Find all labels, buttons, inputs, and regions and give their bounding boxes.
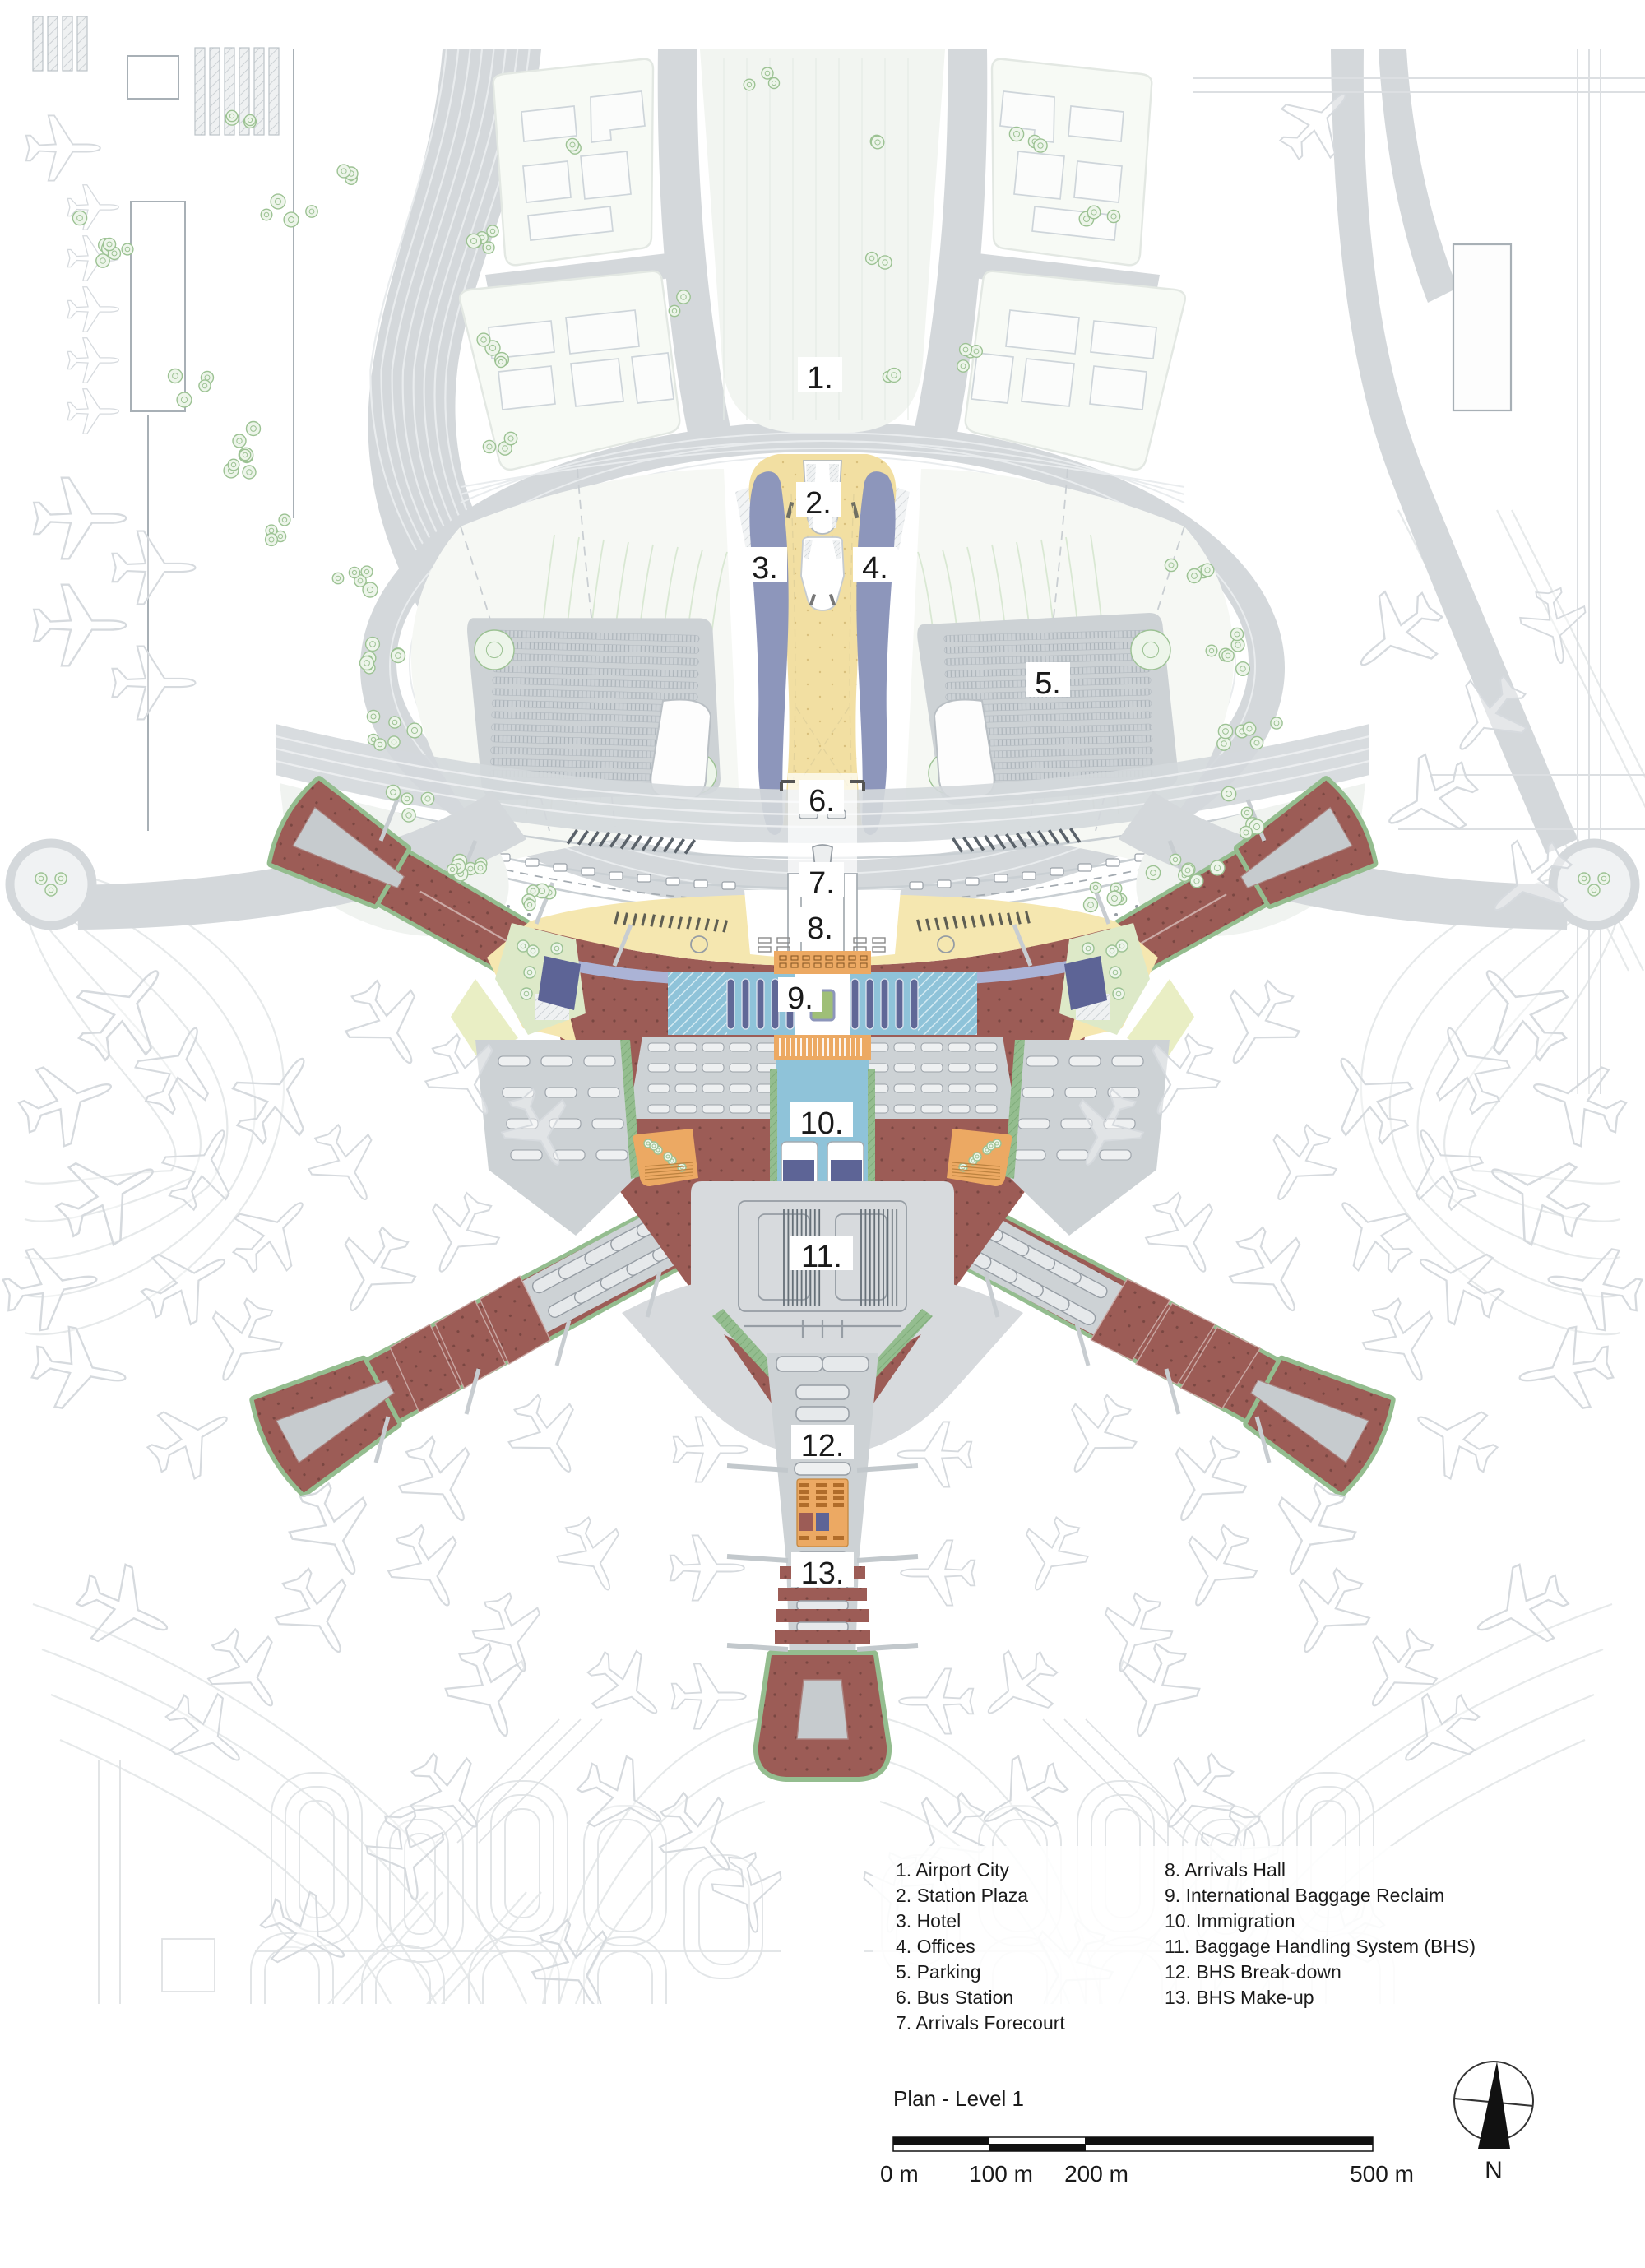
svg-text:6. Bus Station: 6. Bus Station	[896, 1987, 1013, 2008]
svg-text:10. Immigration: 10. Immigration	[1165, 1910, 1295, 1932]
svg-text:500 m: 500 m	[1350, 2161, 1414, 2187]
svg-text:7.: 7.	[809, 866, 835, 901]
svg-text:4. Offices: 4. Offices	[896, 1936, 975, 1957]
svg-text:13. BHS Make-up: 13. BHS Make-up	[1165, 1987, 1314, 2008]
svg-text:100 m: 100 m	[969, 2161, 1033, 2187]
svg-text:2.: 2.	[805, 486, 832, 521]
svg-text:1.: 1.	[807, 361, 833, 396]
svg-text:200 m: 200 m	[1064, 2161, 1128, 2187]
svg-text:9. International Baggage Recla: 9. International Baggage Reclaim	[1165, 1885, 1444, 1906]
svg-text:7. Arrivals Forecourt: 7. Arrivals Forecourt	[896, 2012, 1065, 2034]
svg-text:N: N	[1485, 2157, 1503, 2184]
svg-text:Plan - Level 1: Plan - Level 1	[893, 2086, 1024, 2111]
svg-text:12. BHS Break-down: 12. BHS Break-down	[1165, 1961, 1341, 1983]
svg-text:11.: 11.	[801, 1240, 842, 1274]
svg-text:5.: 5.	[1035, 666, 1061, 701]
svg-text:3. Hotel: 3. Hotel	[896, 1910, 961, 1932]
svg-text:1. Airport City: 1. Airport City	[896, 1859, 1010, 1881]
svg-text:6.: 6.	[809, 784, 835, 819]
svg-text:12.: 12.	[801, 1429, 845, 1463]
svg-text:10.: 10.	[800, 1106, 844, 1141]
svg-text:0 m: 0 m	[880, 2161, 919, 2187]
svg-text:2. Station Plaza: 2. Station Plaza	[896, 1885, 1028, 1906]
svg-text:4.: 4.	[862, 551, 888, 586]
svg-text:13.: 13.	[801, 1556, 845, 1591]
svg-text:11. Baggage Handling System (B: 11. Baggage Handling System (BHS)	[1165, 1936, 1476, 1957]
svg-text:8.: 8.	[807, 911, 833, 946]
svg-text:8. Arrivals Hall: 8. Arrivals Hall	[1165, 1859, 1286, 1881]
svg-text:9.: 9.	[787, 981, 813, 1016]
svg-text:5. Parking: 5. Parking	[896, 1961, 981, 1983]
svg-text:3.: 3.	[752, 551, 778, 586]
